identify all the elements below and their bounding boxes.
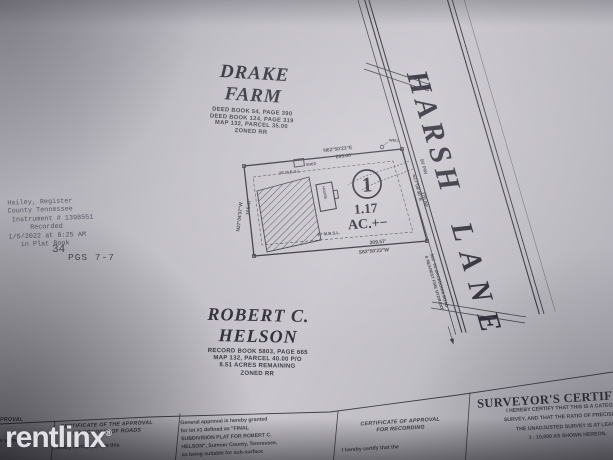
road-name-lane: LANE bbox=[444, 217, 511, 346]
well-symbol bbox=[380, 145, 384, 149]
road-note-arrowhead bbox=[450, 338, 456, 345]
stamp-pages: PGS 7-7 bbox=[68, 252, 115, 263]
lot-area: 1.17 bbox=[353, 200, 378, 217]
well-label: WELL bbox=[389, 139, 400, 143]
stamp-book-number: 34 bbox=[52, 244, 65, 256]
setback-front-label: 40' M.B.S.L. bbox=[317, 230, 341, 237]
drake-farm-title: DRAKE FARM bbox=[192, 59, 316, 110]
setback-rear-label: 20' M.B.S.L. bbox=[279, 168, 302, 175]
lot-area-unit: AC.+− bbox=[347, 216, 388, 234]
helson-block: ROBERT C. HELSON RECORD BOOK 5803, PAGE … bbox=[165, 303, 350, 380]
west-bearing: N27°04'37"W bbox=[235, 202, 244, 232]
house-porch bbox=[333, 190, 338, 199]
divider-3 bbox=[334, 412, 339, 460]
shed-label: SHED bbox=[306, 162, 317, 167]
registered-trademark-icon: ® bbox=[105, 428, 112, 438]
plat-photo: HARSH LANE 50' P/W 800' TO MACEDONIA ROA… bbox=[0, 0, 613, 460]
drake-farm-block: DRAKE FARM DEED BOOK 54, PAGE 390 DEED B… bbox=[190, 59, 316, 139]
lot-number-badge: 1 bbox=[352, 169, 382, 199]
road-note-arrow-line bbox=[448, 326, 452, 338]
soils-approval-note: General approval is hereby granted for l… bbox=[180, 413, 332, 460]
well-leader-line bbox=[384, 142, 388, 145]
house-label: HOUSE bbox=[321, 186, 327, 200]
north-distance: 295.00' bbox=[335, 153, 352, 161]
south-bearing: S62°50'23"W bbox=[359, 247, 390, 256]
watermark-brand: rentlinx bbox=[5, 421, 105, 454]
hatched-area bbox=[257, 177, 321, 252]
lot-number: 1 bbox=[361, 172, 373, 197]
house: HOUSE bbox=[316, 181, 340, 211]
helson-title: ROBERT C. HELSON bbox=[166, 303, 351, 349]
west-distance: 165.47' bbox=[245, 199, 253, 215]
watermark: rentlinx® bbox=[5, 421, 112, 455]
recording-stamp: Hailey, Register County Tennessee Instru… bbox=[7, 194, 159, 250]
